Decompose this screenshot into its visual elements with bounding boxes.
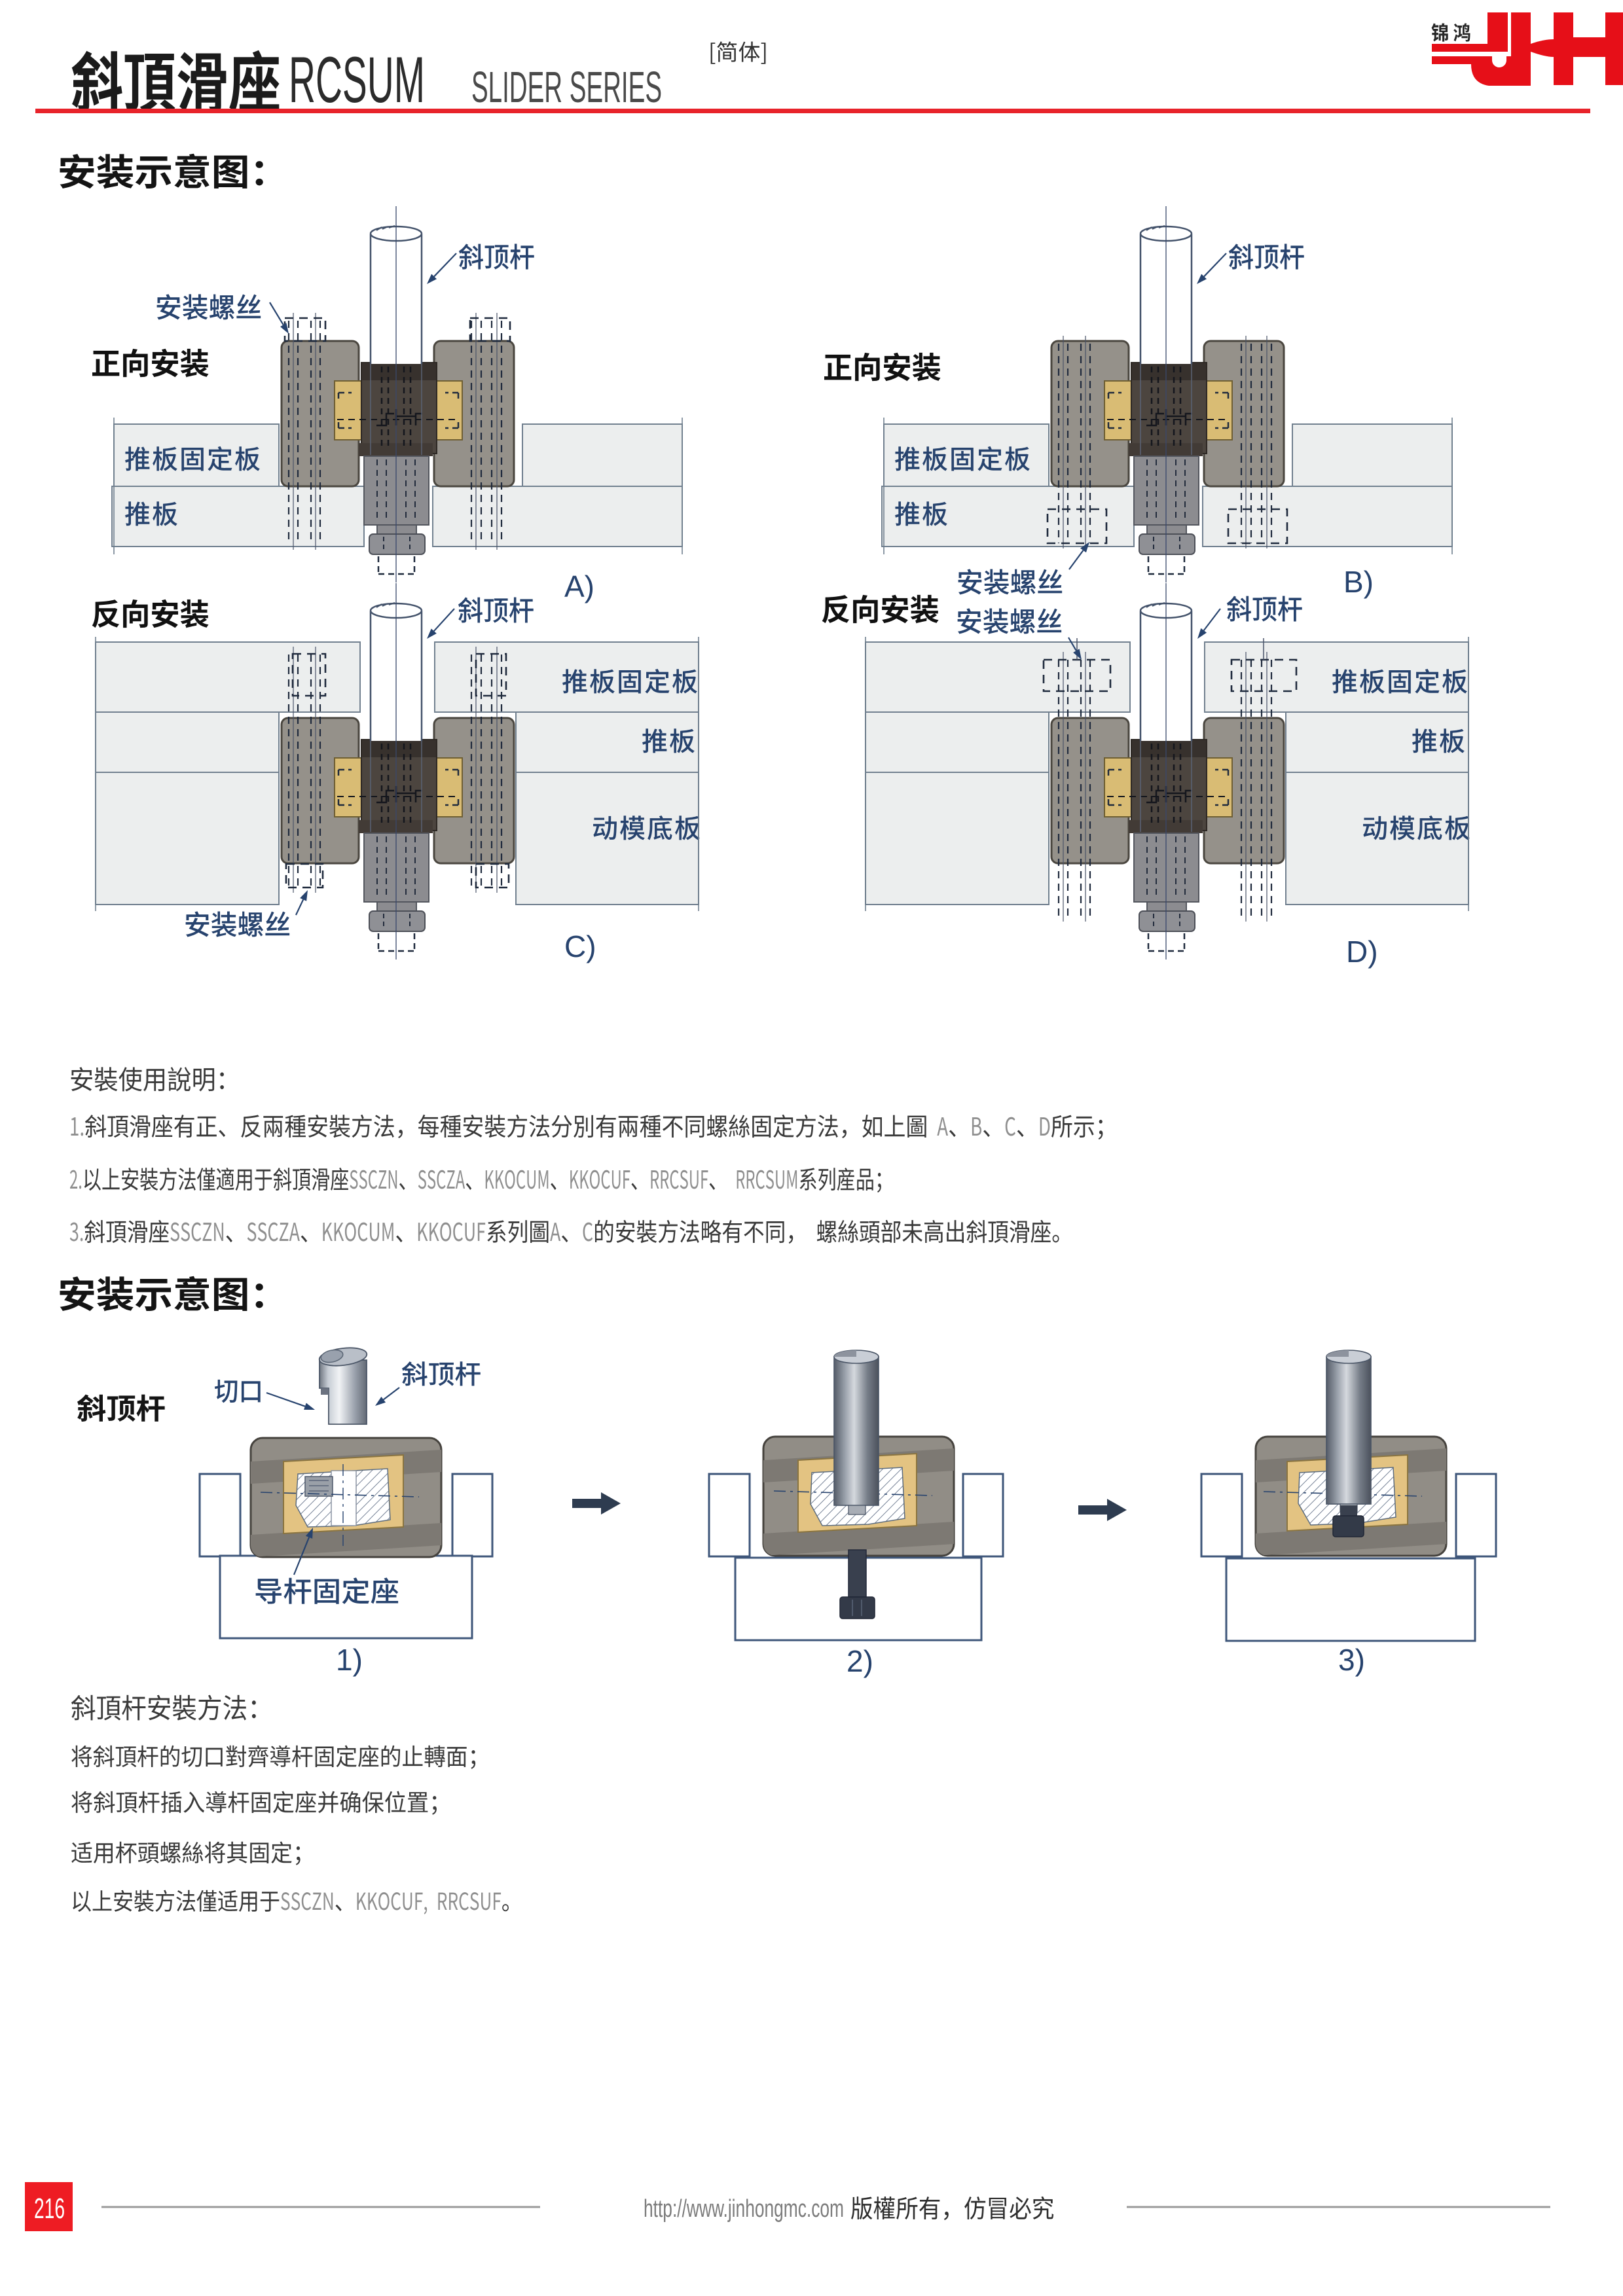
svg-text:RCSUM: RCSUM — [289, 43, 425, 116]
svg-text:D): D) — [1346, 935, 1378, 969]
svg-text:216: 216 — [34, 2193, 65, 2225]
svg-text:B): B) — [1343, 565, 1374, 599]
svg-text:SLIDER SERIES: SLIDER SERIES — [471, 63, 662, 112]
svg-text:C): C) — [564, 929, 596, 963]
svg-text:3): 3) — [1338, 1643, 1365, 1677]
svg-text:http://www.jinhongmc.com: http://www.jinhongmc.com — [644, 2195, 844, 2223]
svg-text:A): A) — [564, 569, 594, 603]
svg-text:2): 2) — [847, 1644, 873, 1678]
svg-text:1): 1) — [336, 1643, 363, 1677]
